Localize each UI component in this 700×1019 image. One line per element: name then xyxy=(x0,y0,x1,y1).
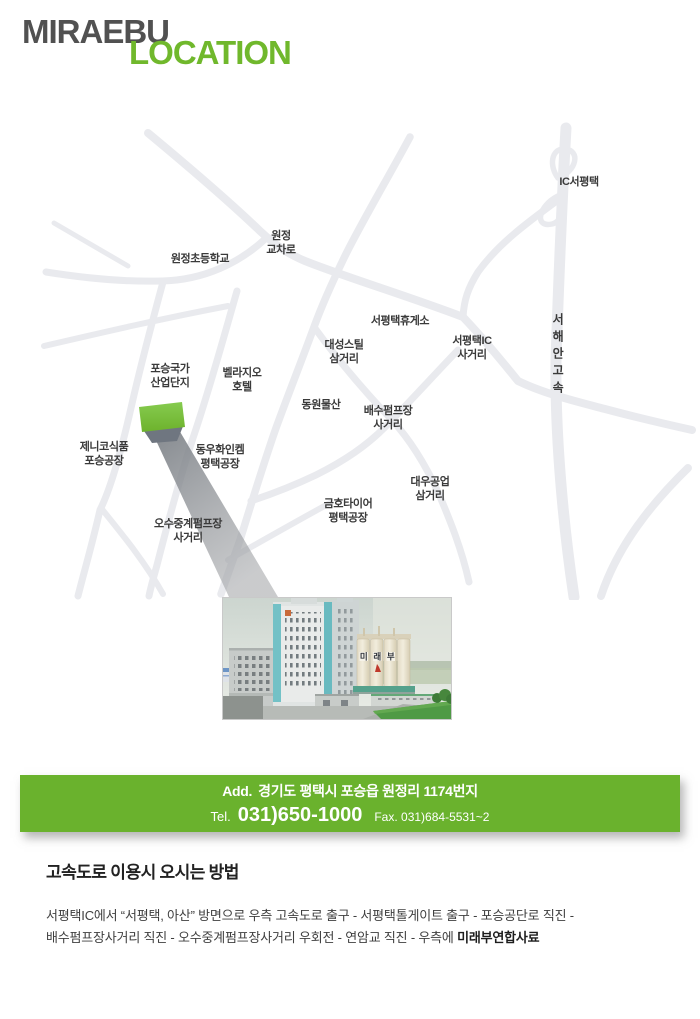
location-marker xyxy=(139,402,185,432)
building-photo-art: 미 래 부 xyxy=(223,598,451,719)
map-label-seopyeongtaek-rest-area: 서평택휴게소 xyxy=(371,314,429,328)
road-grid-cross xyxy=(44,306,228,346)
map-label-seopyeongtaek-ic-sageori: 서평택IC사거리 xyxy=(452,334,491,362)
tel-line: Tel. 031)650-1000 Fax. 031)684-5531~2 xyxy=(20,804,680,827)
tel-number: 031)650-1000 xyxy=(238,804,363,827)
map-label-jenico-foods-poseung: 제니코식품포승공장 xyxy=(80,440,129,468)
map-label-kumho-tire-pyeongtaek: 금호타이어평택공장 xyxy=(324,497,373,525)
map-label-wonjeong-elementary-school: 원정초등학교 xyxy=(171,252,229,266)
tel-label: Tel. xyxy=(211,809,231,824)
map-label-seohaean-expressway: 서해안고속 xyxy=(553,312,564,397)
address-line: Add.경기도 평택시 포승읍 원정리 1174번지 xyxy=(20,781,680,801)
directions-line-1: 서평택IC에서 “서평택, 아산” 방면으로 우측 고속도로 출구 - 서평택톨… xyxy=(46,908,574,923)
road-branch-northwest xyxy=(54,223,128,266)
address-banner: Add.경기도 평택시 포승읍 원정리 1174번지 Tel. 031)650-… xyxy=(20,775,680,832)
map-label-dongwon-mulsan: 동원물산 xyxy=(302,398,341,412)
tower-logo xyxy=(285,610,291,616)
silo-char-2: 래 xyxy=(373,652,381,662)
road-network xyxy=(44,128,692,597)
address-value: 경기도 평택시 포승읍 원정리 1174번지 xyxy=(258,783,478,799)
page-title: LOCATION xyxy=(129,34,291,72)
fax-info: Fax. 031)684-5531~2 xyxy=(374,810,489,824)
map-label-poseung-national-industrial-complex: 포승국가산업단지 xyxy=(151,362,190,390)
map-label-wonjeong-gyocharo: 원정교차로 xyxy=(266,229,295,257)
road-bottom-right-curve xyxy=(601,468,688,596)
location-map: IC서평택원정교차로원정초등학교서평택휴게소대성스틸삼거리서평택IC사거리서해안… xyxy=(0,120,700,600)
page: MIRAEBU LOCATION xyxy=(0,0,700,1019)
map-label-ic-seopyeongtaek: IC서평택 xyxy=(559,175,598,189)
company-name: 미래부연합사료 xyxy=(457,930,539,945)
company-building-photo: 미 래 부 xyxy=(222,597,452,720)
directions-section: 고속도로 이용시 오시는 방법 서평택IC에서 “서평택, 아산” 방면으로 우… xyxy=(46,858,676,949)
fax-label: Fax. xyxy=(374,810,397,824)
directions-body: 서평택IC에서 “서평택, 아산” 방면으로 우측 고속도로 출구 - 서평택톨… xyxy=(46,905,676,949)
road-ic-ramp xyxy=(463,200,558,317)
map-label-daewoo-gongeop-samgeori: 대우공업삼거리 xyxy=(411,475,450,503)
road-school xyxy=(46,240,264,281)
map-label-osu-relay-pump-sageori: 오수중계펌프장사거리 xyxy=(154,517,222,545)
silo-char-1: 미 xyxy=(360,652,368,662)
photo-walkway xyxy=(353,686,415,692)
silo-char-3: 부 xyxy=(387,652,395,662)
photo-silos: 미 래 부 xyxy=(357,626,411,687)
map-label-dongwoo-finechem-pyeongtaek: 동우화인켐평택공장 xyxy=(196,443,245,471)
fax-number: 031)684-5531~2 xyxy=(401,810,489,824)
map-label-bellagio-hotel: 벨라지오호텔 xyxy=(223,366,262,394)
directions-line-2: 배수펌프장사거리 직진 - 오수중계펌프장사거리 우회전 - 연암교 직진 - … xyxy=(46,930,539,945)
photo-main-tower xyxy=(273,598,359,706)
photo-left-shadow xyxy=(223,696,263,719)
address-label: Add. xyxy=(222,783,252,799)
map-label-baesu-pump-sageori: 배수펌프장사거리 xyxy=(364,404,413,432)
directions-heading: 고속도로 이용시 오시는 방법 xyxy=(46,858,676,883)
map-label-daeseong-steel-samgeori: 대성스틸삼거리 xyxy=(325,338,364,366)
